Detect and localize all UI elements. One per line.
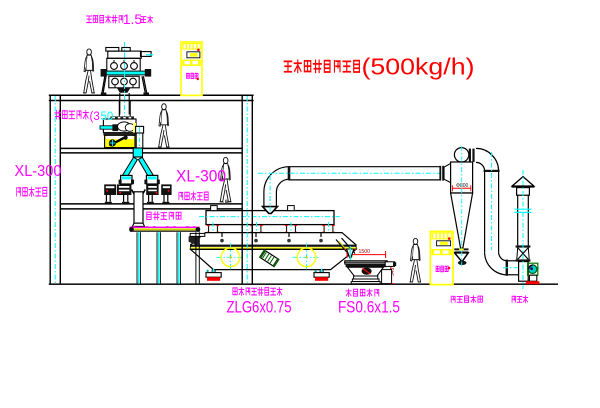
svg-text:Φ800: Φ800	[456, 183, 469, 189]
svg-text:(500kg/h): (500kg/h)	[362, 54, 475, 80]
svg-text:5: 5	[222, 200, 225, 205]
svg-text:1.5: 1.5	[123, 11, 143, 27]
svg-text:(3: (3	[90, 111, 100, 123]
svg-text:ZLG6x0.75: ZLG6x0.75	[227, 298, 292, 317]
svg-text:1500: 1500	[359, 249, 371, 255]
svg-text:XL-300: XL-300	[176, 167, 226, 186]
svg-text:XL-300: XL-300	[15, 163, 62, 180]
svg-text:50: 50	[101, 111, 114, 123]
svg-text:FS0.6x1.5: FS0.6x1.5	[338, 298, 400, 317]
